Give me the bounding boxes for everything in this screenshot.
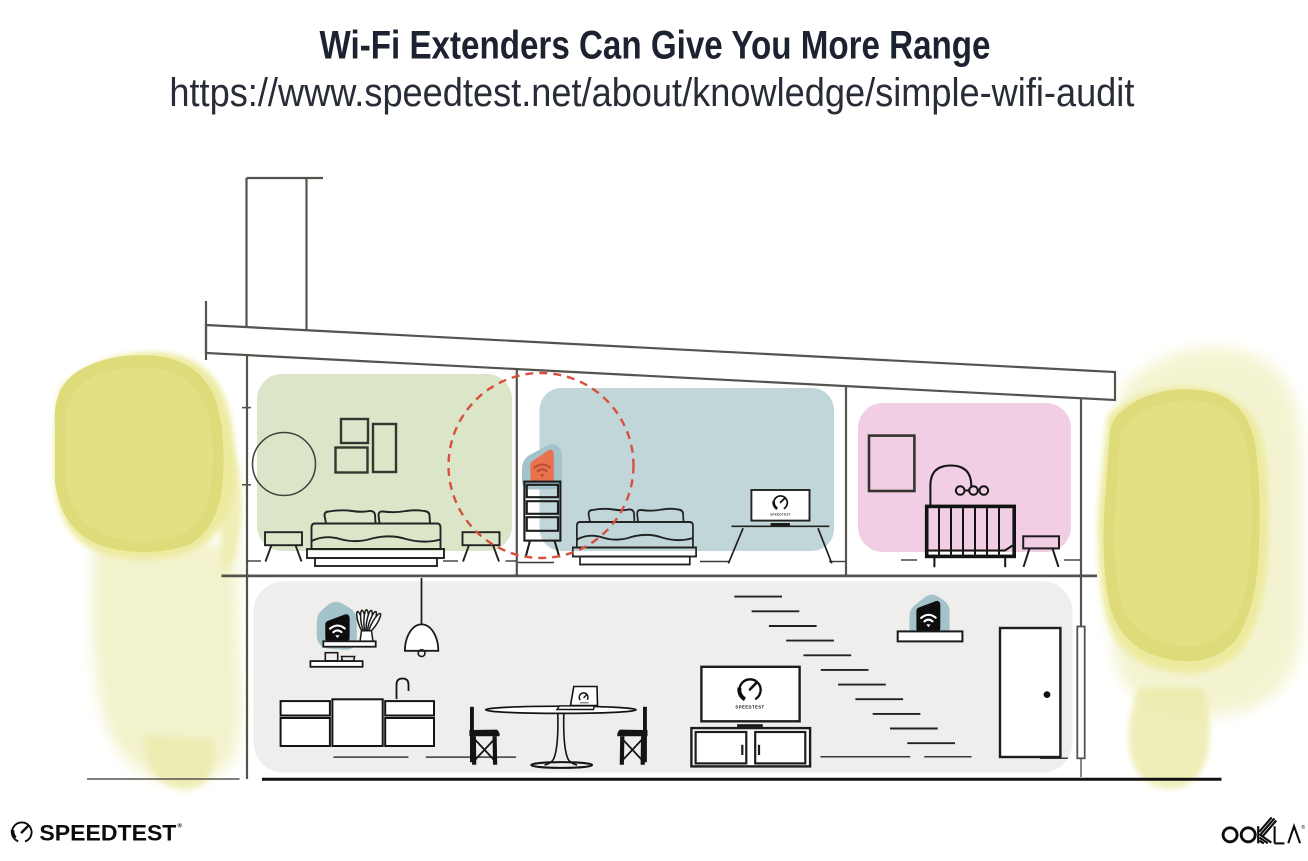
svg-text:®: ®: [1302, 824, 1306, 831]
svg-text:https://www.speedtest.net/abou: https://www.speedtest.net/about/knowledg…: [169, 71, 1134, 115]
svg-text:SPEEDTEST: SPEEDTEST: [39, 821, 177, 846]
svg-text:®: ®: [178, 823, 183, 830]
svg-text:Wi-Fi Extenders Can Give You M: Wi-Fi Extenders Can Give You More Range: [320, 24, 991, 68]
svg-text:SPEEDTEST: SPEEDTEST: [735, 704, 764, 709]
svg-text:SPEEDTEST: SPEEDTEST: [770, 513, 791, 517]
